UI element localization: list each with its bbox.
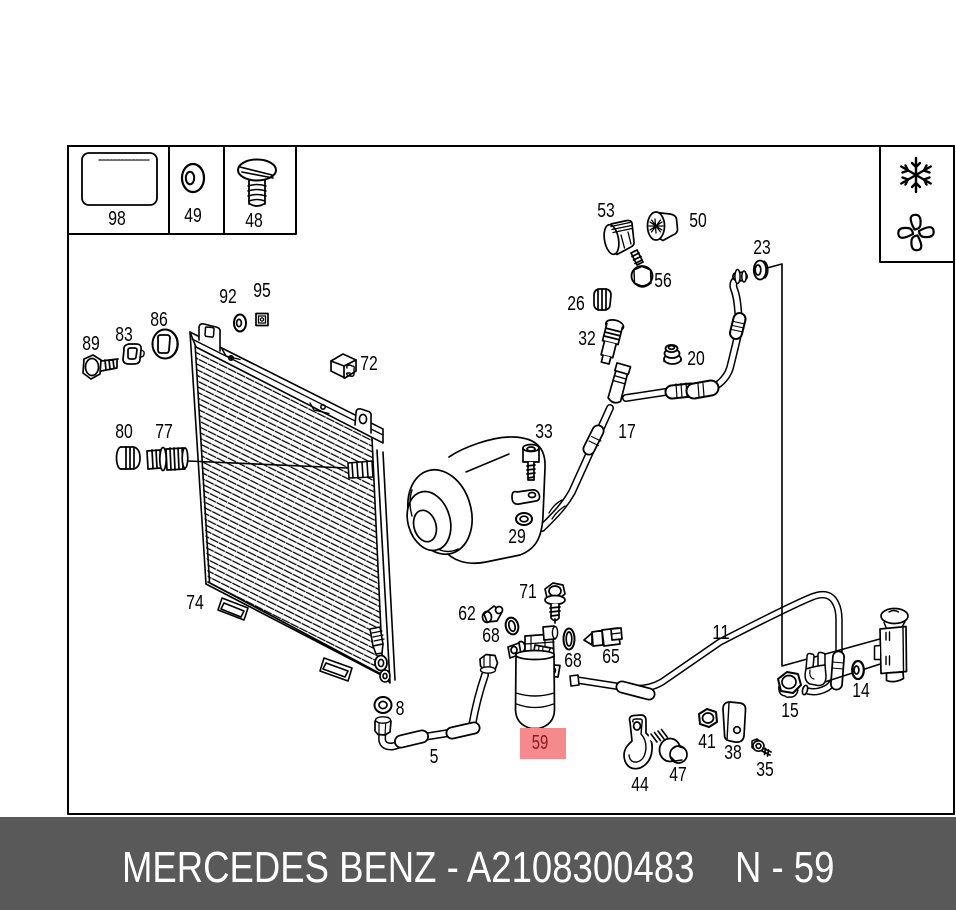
svg-text:89: 89 bbox=[82, 333, 100, 355]
svg-text:33: 33 bbox=[535, 421, 553, 443]
svg-text:77: 77 bbox=[155, 421, 173, 443]
svg-text:68: 68 bbox=[482, 625, 500, 647]
svg-text:44: 44 bbox=[631, 774, 649, 796]
svg-text:65: 65 bbox=[602, 646, 620, 668]
svg-text:41: 41 bbox=[698, 731, 716, 753]
svg-text:80: 80 bbox=[115, 421, 133, 443]
svg-text:14: 14 bbox=[852, 680, 870, 702]
svg-text:72: 72 bbox=[360, 353, 378, 375]
svg-text:95: 95 bbox=[253, 280, 271, 302]
svg-text:35: 35 bbox=[756, 759, 774, 781]
svg-text:26: 26 bbox=[567, 293, 585, 315]
svg-text:17: 17 bbox=[618, 421, 636, 443]
svg-text:71: 71 bbox=[519, 581, 537, 603]
svg-text:8: 8 bbox=[396, 698, 405, 720]
svg-text:98: 98 bbox=[108, 208, 126, 230]
svg-text:5: 5 bbox=[430, 746, 439, 768]
svg-text:38: 38 bbox=[724, 742, 742, 764]
svg-text:32: 32 bbox=[578, 328, 596, 350]
svg-text:74: 74 bbox=[186, 592, 204, 614]
svg-text:20: 20 bbox=[687, 348, 705, 370]
svg-text:48: 48 bbox=[245, 210, 263, 232]
svg-text:83: 83 bbox=[115, 324, 133, 346]
svg-text:50: 50 bbox=[689, 210, 707, 232]
svg-text:68: 68 bbox=[564, 650, 582, 672]
svg-text:53: 53 bbox=[597, 200, 615, 222]
svg-text:11: 11 bbox=[712, 622, 730, 644]
svg-text:86: 86 bbox=[150, 309, 168, 331]
svg-text:56: 56 bbox=[654, 270, 672, 292]
svg-text:59: 59 bbox=[532, 732, 549, 754]
svg-text:29: 29 bbox=[508, 526, 526, 548]
svg-text:47: 47 bbox=[669, 764, 687, 786]
svg-text:15: 15 bbox=[781, 700, 799, 722]
svg-text:23: 23 bbox=[753, 237, 771, 259]
svg-text:49: 49 bbox=[184, 205, 202, 227]
svg-text:92: 92 bbox=[219, 286, 237, 308]
svg-text:62: 62 bbox=[458, 603, 476, 625]
